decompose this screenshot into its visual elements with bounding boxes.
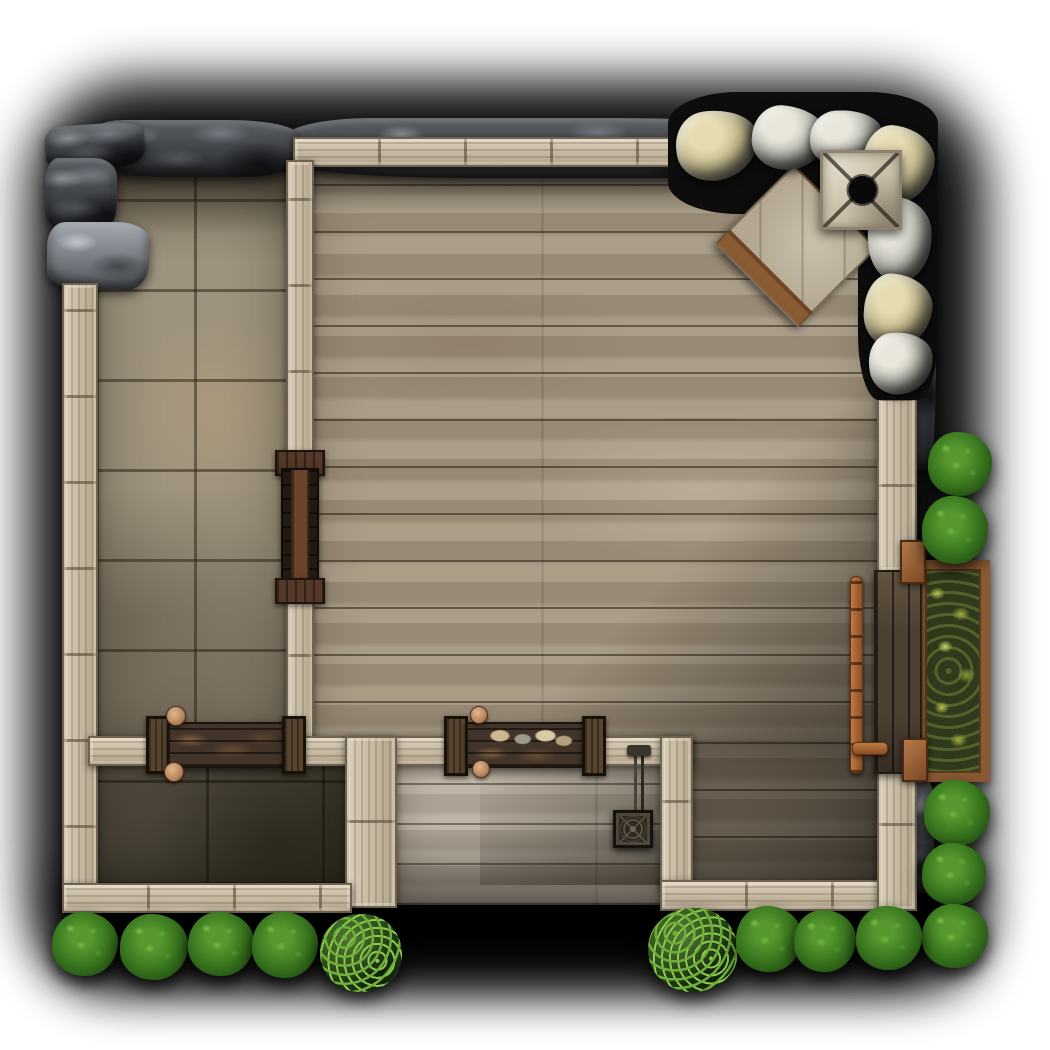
bench-copper-elbow[interactable] xyxy=(852,742,888,755)
bush-northeast-2[interactable] xyxy=(922,496,988,564)
wall-west xyxy=(62,283,98,913)
bush-east-1[interactable] xyxy=(924,780,990,846)
wall-south-west xyxy=(62,883,352,913)
bench-post-south[interactable] xyxy=(902,738,928,782)
counter-porch-post-right[interactable] xyxy=(582,716,606,776)
cliff-west-upper xyxy=(45,158,117,232)
hanging-sign-bracket[interactable] xyxy=(630,752,648,816)
bush-southwest-1[interactable] xyxy=(52,912,118,976)
bush-southeast-3[interactable] xyxy=(856,906,922,970)
bush-northeast-1[interactable] xyxy=(928,432,992,496)
bush-southeast-1[interactable] xyxy=(736,906,802,972)
bush-southeast-2[interactable] xyxy=(794,910,856,972)
hanging-sign-plaque[interactable] xyxy=(613,810,653,848)
door-south-cap[interactable] xyxy=(275,578,325,604)
door-body[interactable] xyxy=(281,468,319,586)
bench-post-north[interactable] xyxy=(900,540,926,584)
mug-counter-porch-south[interactable] xyxy=(472,760,490,778)
wall-east-lower xyxy=(877,770,917,911)
bush-southwest-2[interactable] xyxy=(120,914,188,980)
bush-southeast-round[interactable] xyxy=(648,908,738,992)
bush-east-2[interactable] xyxy=(922,843,986,905)
mug-counter-west-north[interactable] xyxy=(166,706,186,726)
wall-porch-east xyxy=(660,736,693,888)
mug-counter-west-south[interactable] xyxy=(164,762,184,782)
bush-southwest-3[interactable] xyxy=(188,912,254,976)
counter-west-post-right[interactable] xyxy=(282,716,306,774)
mug-counter-porch-north[interactable] xyxy=(470,706,488,724)
bush-southwest-4[interactable] xyxy=(252,912,318,978)
cliff-west-lower xyxy=(47,222,149,290)
wall-inner-west xyxy=(88,736,152,766)
counter-porch-post-left[interactable] xyxy=(444,716,468,776)
chimney-top[interactable] xyxy=(820,150,902,230)
wall-storeroom-east xyxy=(345,736,397,908)
counter-west-top[interactable] xyxy=(168,722,284,768)
bush-southwest-round[interactable] xyxy=(320,914,402,992)
wall-divider-upper xyxy=(286,160,314,458)
bush-east-3[interactable] xyxy=(922,904,988,968)
battle-map-canvas xyxy=(0,0,1050,1050)
